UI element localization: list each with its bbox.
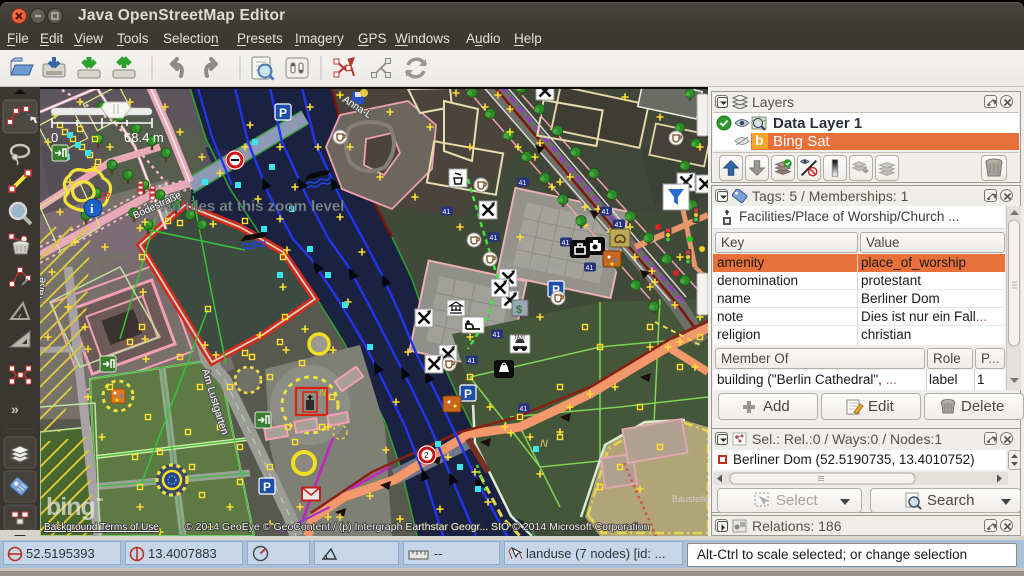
svg-text:68.4 m: 68.4 m [124, 130, 164, 145]
svg-text:41: 41 [468, 358, 476, 365]
svg-text:P: P [464, 387, 472, 401]
svg-text:Background Terms of Use: Background Terms of Use [44, 522, 159, 533]
svg-text:1?: 1? [100, 191, 111, 201]
svg-text:© 2014 GeoEye © GeoContent / (: © 2014 GeoEye © GeoContent / (p) Intergr… [185, 521, 650, 533]
svg-text:P: P [263, 480, 271, 494]
svg-text:0: 0 [51, 130, 58, 145]
svg-text:P: P [279, 106, 287, 120]
svg-text:2: 2 [424, 451, 429, 460]
svg-text:i: i [90, 201, 94, 216]
svg-text:TAXI: TAXI [514, 335, 525, 341]
svg-text:N: N [540, 438, 549, 450]
svg-text:41: 41 [520, 406, 528, 413]
svg-text:™: ™ [96, 498, 103, 505]
svg-text:bing: bing [46, 493, 95, 521]
svg-text:41: 41 [490, 235, 498, 242]
svg-text:41: 41 [562, 240, 570, 247]
svg-text:No tiles at this zoom level: No tiles at this zoom level [161, 198, 344, 215]
svg-text:41: 41 [586, 265, 594, 272]
svg-text:Baustelle: Baustelle [672, 494, 708, 504]
svg-text:DomAquarée: DomAquarée [502, 261, 561, 272]
svg-text:»: » [11, 401, 19, 417]
svg-text:41: 41 [493, 332, 501, 339]
svg-text:$: $ [516, 304, 522, 316]
svg-text:N: N [319, 388, 327, 399]
svg-text:41: 41 [519, 180, 527, 187]
svg-text:41: 41 [602, 209, 610, 216]
svg-text:41: 41 [443, 209, 451, 216]
svg-text:41: 41 [615, 222, 623, 229]
